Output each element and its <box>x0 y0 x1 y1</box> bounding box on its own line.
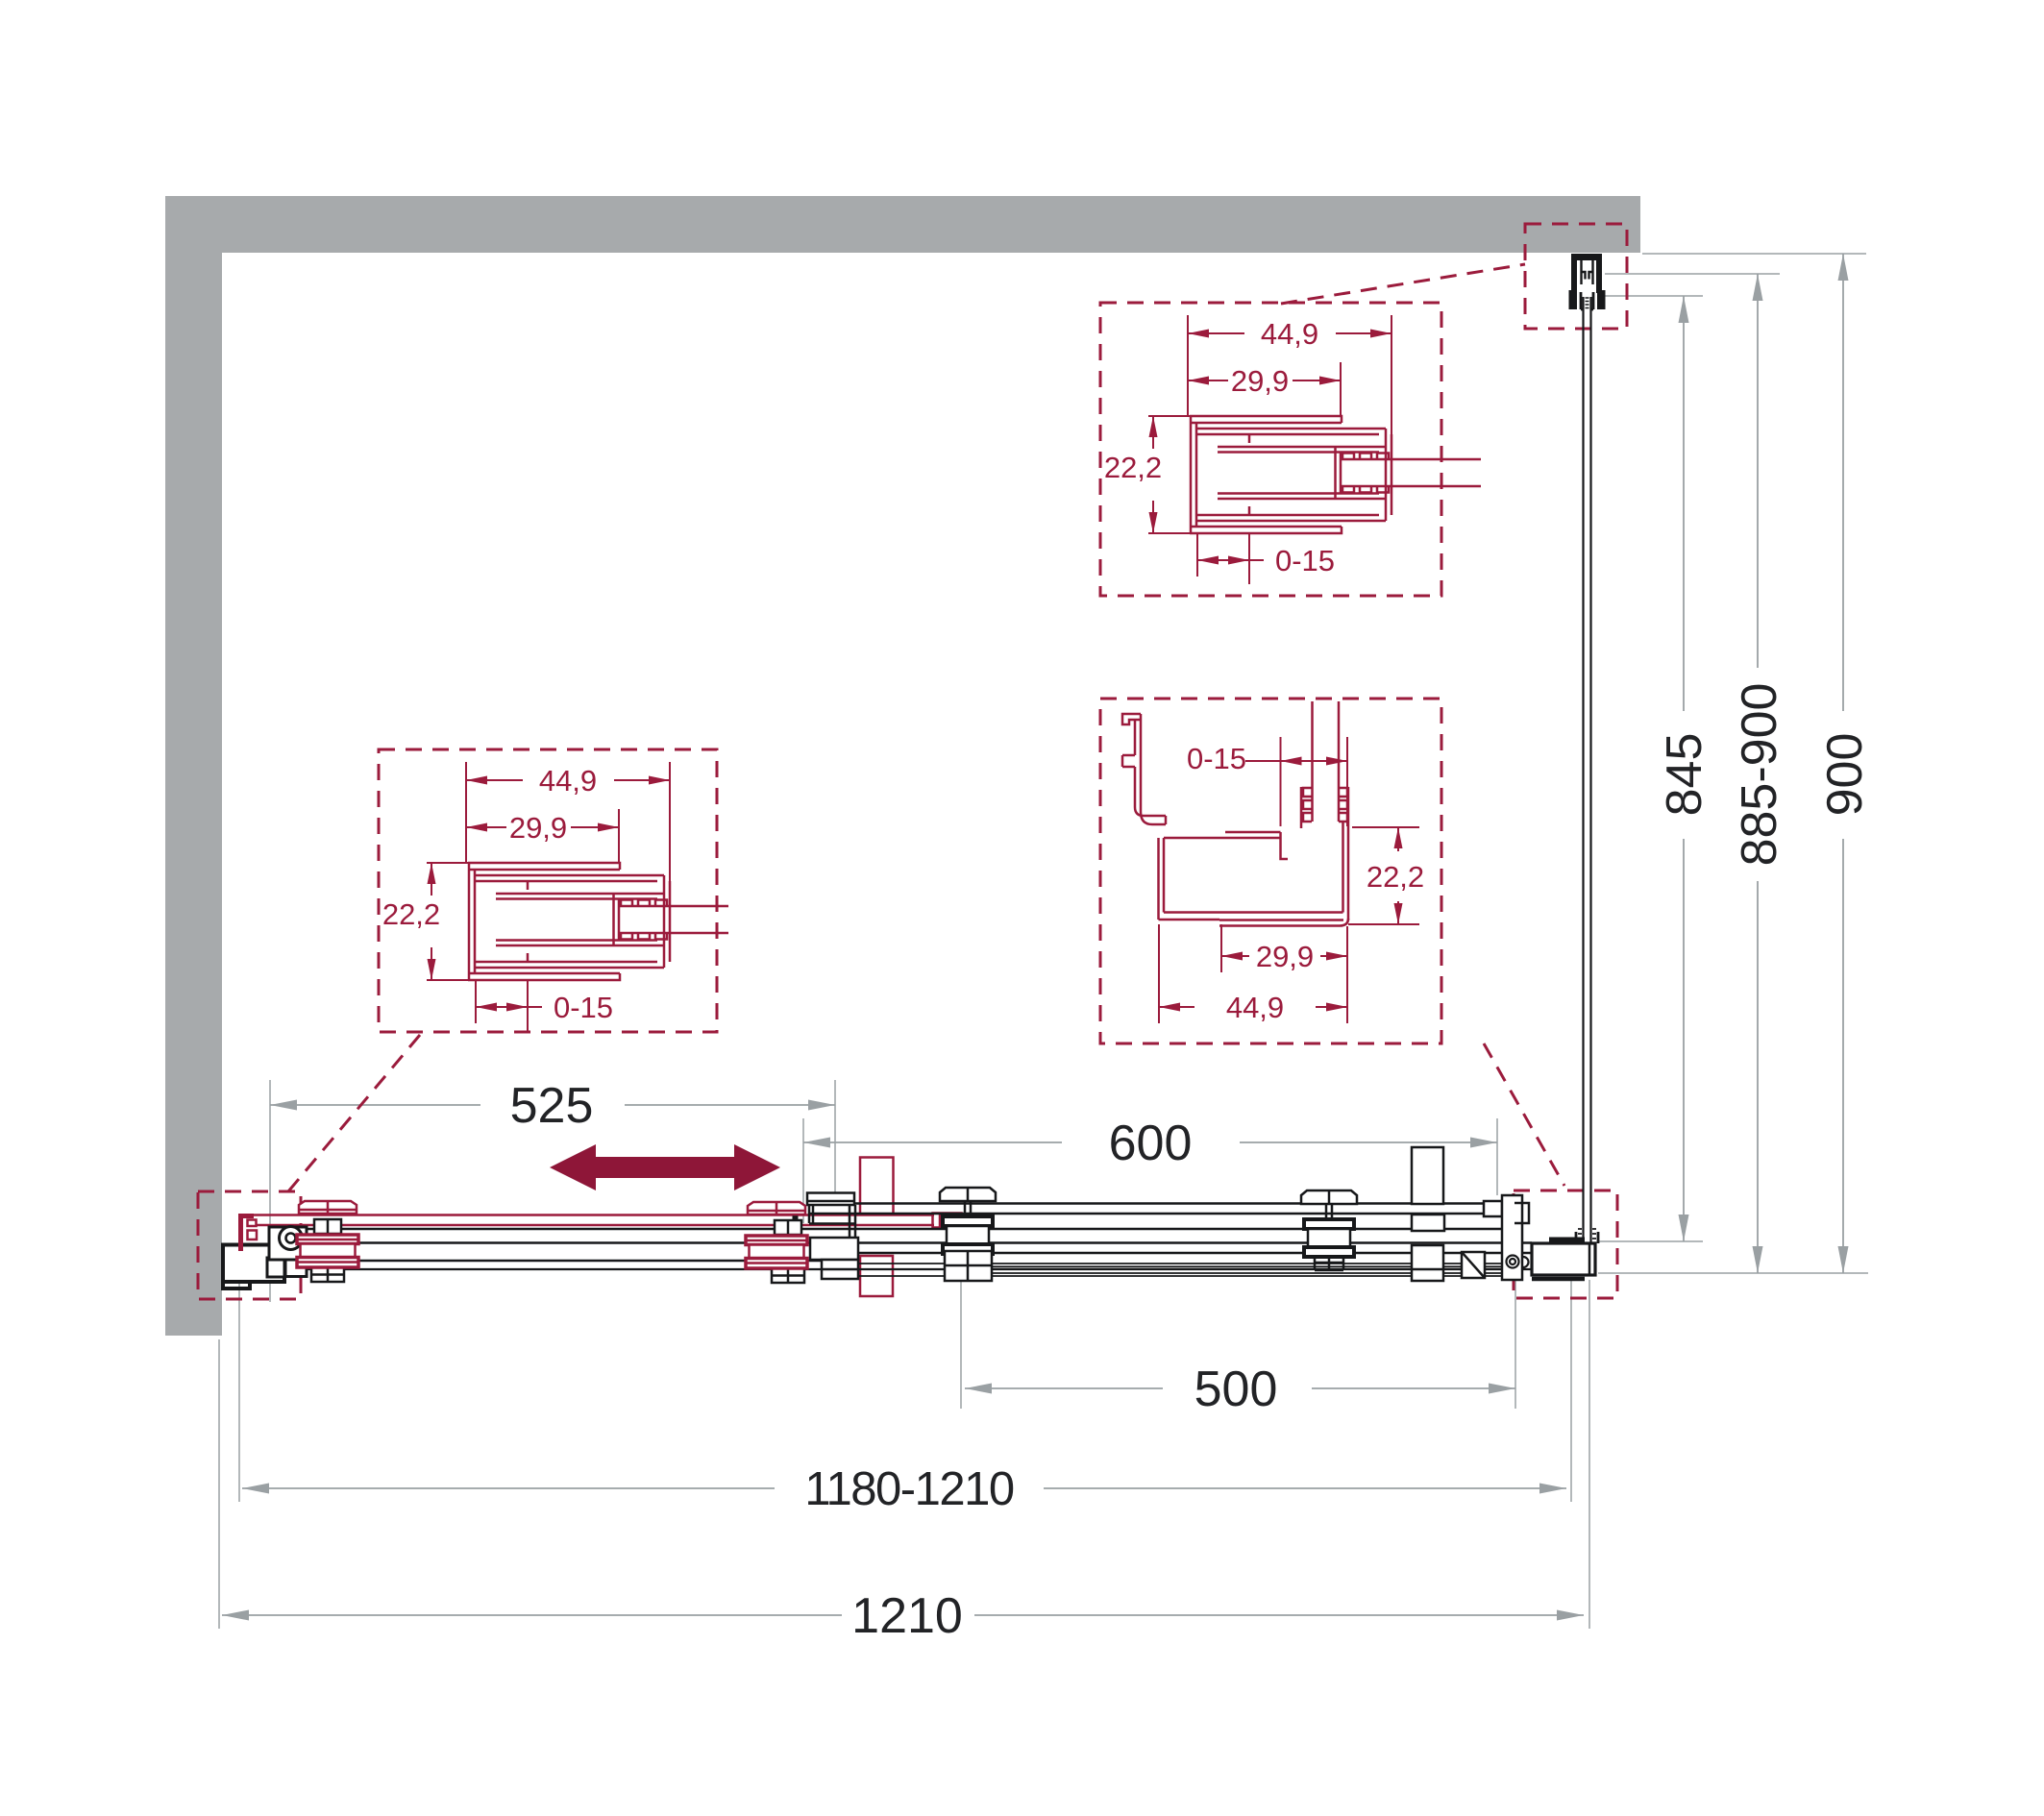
svg-text:845: 845 <box>1657 733 1712 817</box>
svg-text:525: 525 <box>510 1078 594 1134</box>
svg-text:500: 500 <box>1194 1362 1278 1417</box>
svg-text:900: 900 <box>1817 733 1873 817</box>
svg-text:29,9: 29,9 <box>1256 940 1314 973</box>
svg-text:1210: 1210 <box>851 1588 963 1644</box>
svg-text:0-15: 0-15 <box>1187 742 1246 775</box>
svg-text:1180-1210: 1180-1210 <box>804 1463 1013 1515</box>
svg-text:44,9: 44,9 <box>1226 991 1284 1024</box>
svg-text:22,2: 22,2 <box>1367 860 1424 894</box>
svg-text:885-900: 885-900 <box>1732 683 1787 867</box>
svg-text:600: 600 <box>1109 1116 1193 1171</box>
